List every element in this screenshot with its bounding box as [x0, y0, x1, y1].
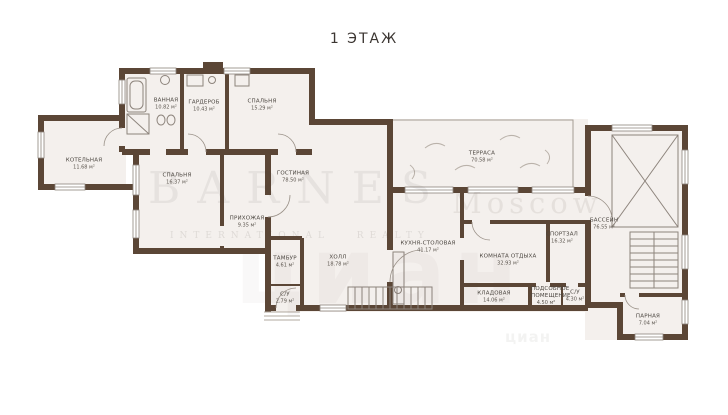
room-area: 10.43 м² [188, 106, 219, 112]
room-area: 7.04 м² [636, 320, 660, 326]
room-name: ПАРНАЯ [636, 313, 660, 320]
room-name: ГОСТИНАЯ [277, 170, 309, 177]
room-label-kladovaya: КЛАДОВАЯ 14.06 м² [477, 290, 510, 303]
room-area: 4.50 м² [531, 300, 561, 306]
room-area: 15.29 м² [247, 105, 276, 111]
room-name: СПАЛЬНЯ [162, 172, 191, 179]
floor-plan-drawing [0, 0, 728, 415]
room-area: 32.93 м² [480, 260, 537, 266]
room-area: 10.82 м² [154, 104, 179, 110]
room-label-komnata-otdyha: КОМНАТА ОТДЫХА 32.93 м² [480, 253, 537, 266]
room-area: 18.78 м² [327, 261, 349, 267]
room-label-tambur: ТАМБУР 4.61 м² [273, 255, 297, 268]
room-label-garderob: ГАРДЕРОБ 10.43 м² [188, 99, 219, 112]
room-name: КЛАДОВАЯ [477, 290, 510, 297]
room-label-su-2: С/У 4.30 м² [566, 289, 585, 302]
room-name: ГАРДЕРОБ [188, 99, 219, 106]
room-name: КОТЕЛЬНАЯ [66, 157, 103, 164]
room-area: 4.30 м² [566, 296, 585, 302]
room-name: БАССЕЙН [590, 217, 618, 224]
room-name: ХОЛЛ [327, 254, 349, 261]
room-label-spalnya-1: СПАЛЬНЯ 15.29 м² [247, 98, 276, 111]
room-name: С/У [276, 291, 295, 298]
room-area: 4.61 м² [273, 262, 297, 268]
room-label-su-1: С/У 2.79 м² [276, 291, 295, 304]
room-label-kuhnya-stolovaya: КУХНЯ-СТОЛОВАЯ 41.17 м² [400, 240, 455, 253]
room-name: СПАЛЬНЯ [247, 98, 276, 105]
room-area: 9.35 м² [230, 222, 265, 228]
room-area: 76.55 м² [590, 224, 618, 230]
room-label-parnaya: ПАРНАЯ 7.04 м² [636, 313, 660, 326]
room-label-kotelnaya: КОТЕЛЬНАЯ 11.68 м² [66, 157, 103, 170]
room-name: СПОРТЗАЛ [546, 231, 578, 238]
room-name: КУХНЯ-СТОЛОВАЯ [400, 240, 455, 247]
room-name: КОМНАТА ОТДЫХА [480, 253, 537, 260]
room-label-prihozhaya: ПРИХОЖАЯ 9.35 м² [230, 215, 265, 228]
room-area: 16.37 м² [162, 179, 191, 185]
room-name: ТАМБУР [273, 255, 297, 262]
room-label-holl: ХОЛЛ 18.78 м² [327, 254, 349, 267]
room-label-vannaya: ВАННАЯ 10.82 м² [154, 97, 179, 110]
room-name: ТЕРРАСА [469, 150, 495, 157]
room-area: 16.32 м² [546, 238, 578, 244]
room-label-bassein: БАССЕЙН 76.55 м² [590, 217, 618, 230]
room-area: 70.58 м² [469, 157, 495, 163]
room-label-spalnya-2: СПАЛЬНЯ 16.37 м² [162, 172, 191, 185]
room-label-terrasa: ТЕРРАСА 70.58 м² [469, 150, 495, 163]
room-label-sportzal: СПОРТЗАЛ 16.32 м² [546, 231, 578, 244]
room-name: ПОДСОБНОЕ ПОМЕЩЕНИЕ [531, 286, 561, 300]
room-name: ПРИХОЖАЯ [230, 215, 265, 222]
room-name: С/У [566, 289, 585, 296]
room-area: 2.79 м² [276, 298, 295, 304]
floor-plan-canvas: циан BARNES INTERNATIONAL REALTY Moscow … [0, 0, 728, 415]
room-label-gostinaya: ГОСТИНАЯ 78.50 м² [277, 170, 309, 183]
room-area: 14.06 м² [477, 297, 510, 303]
entrance-steps [264, 312, 300, 320]
room-area: 78.50 м² [277, 177, 309, 183]
page-title: 1 ЭТАЖ [0, 31, 728, 47]
room-area: 41.17 м² [400, 247, 455, 253]
room-area: 11.68 м² [66, 164, 103, 170]
room-label-podsobnoe: ПОДСОБНОЕ ПОМЕЩЕНИЕ 4.50 м² [531, 286, 561, 306]
room-name: ВАННАЯ [154, 97, 179, 104]
